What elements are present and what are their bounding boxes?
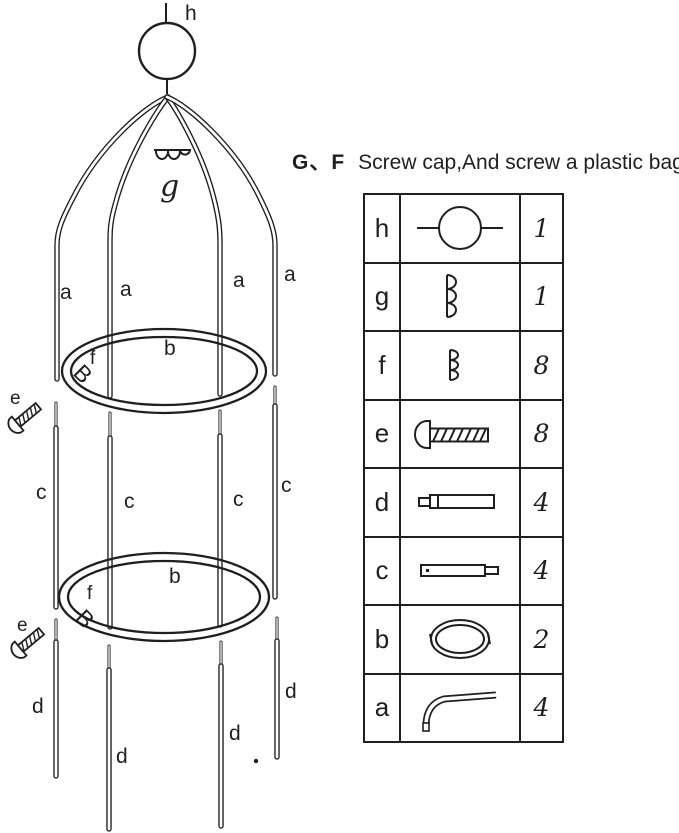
parts-row-b: b 2 (364, 605, 563, 674)
label-c-4: c (281, 474, 292, 497)
parts-row-e: e 8 (364, 400, 563, 469)
part-quantity: 4 (520, 468, 563, 537)
leg-rods (56, 618, 277, 829)
parts-row-f: f 8 (364, 331, 563, 400)
screw-icon (401, 402, 519, 466)
part-letter: e (364, 400, 400, 469)
part-letter: d (364, 468, 400, 537)
label-d-1: d (32, 695, 44, 718)
label-d-2: d (116, 745, 128, 768)
label-e-lower: e (17, 615, 28, 636)
part-letter: f (364, 331, 400, 400)
obelisk-assembly-diagram: B B h g a a a a b b f f e e c c c c d d … (0, 0, 679, 833)
curved-rod-icon (401, 676, 519, 740)
parts-table: h 1 g 1 (363, 193, 564, 743)
label-e-upper: e (10, 388, 21, 409)
part-quantity: 8 (520, 331, 563, 400)
label-h: h (185, 2, 197, 25)
label-c-2: c (124, 490, 135, 513)
part-letter: c (364, 537, 400, 606)
label-b-lower: b (169, 565, 181, 588)
label-d-4: d (285, 680, 297, 703)
label-c-1: c (36, 481, 47, 504)
label-a-4: a (284, 263, 296, 286)
part-letter: g (364, 263, 400, 332)
leg-tube-icon (401, 470, 519, 534)
parts-row-g: g 1 (364, 263, 563, 332)
label-a-2: a (120, 278, 132, 301)
parts-row-h: h 1 (364, 194, 563, 263)
large-screw-cap-icon (401, 265, 519, 329)
part-letter: a (364, 674, 400, 743)
label-g: g (160, 169, 179, 204)
screw-cap-drawing (154, 150, 191, 159)
caption-text: Screw cap,And screw a plastic bag (358, 151, 679, 174)
ink-dot (254, 759, 258, 763)
parts-row-a: a 4 (364, 674, 563, 743)
label-a-1: a (60, 281, 72, 304)
label-c-3: c (233, 488, 244, 511)
part-letter: h (364, 194, 400, 263)
part-quantity: 8 (520, 400, 563, 469)
middle-tube-icon (401, 539, 519, 603)
assembly-instruction-sheet: B B h g a a a a b b f f e e c c c c d d … (0, 0, 679, 833)
ball-finial-icon (401, 196, 519, 260)
small-screw-cap-icon (401, 333, 519, 397)
part-quantity: 4 (520, 537, 563, 606)
part-quantity: 4 (520, 674, 563, 743)
part-quantity: 1 (520, 263, 563, 332)
part-quantity: 2 (520, 605, 563, 674)
part-quantity: 1 (520, 194, 563, 263)
parts-row-c: c 4 (364, 537, 563, 606)
label-d-3: d (229, 722, 241, 745)
ring-icon (401, 607, 519, 671)
part-letter: b (364, 605, 400, 674)
label-b-upper: b (164, 337, 176, 360)
parts-row-d: d 4 (364, 468, 563, 537)
label-f-lower: f (87, 583, 93, 604)
instruction-caption: G、FScrew cap,And screw a plastic bag (292, 146, 679, 176)
label-f-upper: f (90, 348, 96, 369)
caption-part-refs: G、F (292, 151, 345, 174)
clip-drawing-lower: B (70, 604, 99, 633)
label-a-3: a (233, 269, 245, 292)
